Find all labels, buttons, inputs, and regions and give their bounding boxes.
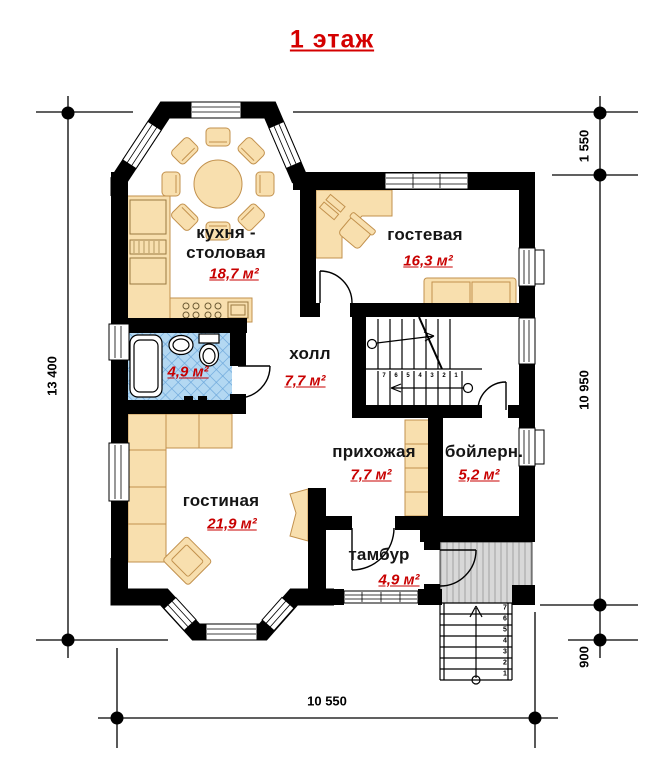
area-label-bathroom: 4,9 м² <box>167 364 208 381</box>
step-number: 4 <box>503 638 507 645</box>
window-guest-top <box>385 173 468 189</box>
window-bay-bottom <box>206 624 257 640</box>
floor-plan-drawing <box>0 0 655 770</box>
room-label-vestibule: тамбур <box>348 545 409 565</box>
step-number: 6 <box>394 373 397 379</box>
step-number: 1 <box>454 373 457 379</box>
area-label-guest: 16,3 м² <box>403 253 452 270</box>
door-guest <box>320 271 352 303</box>
window-bathroom-left <box>109 324 129 360</box>
step-number: 5 <box>406 373 409 379</box>
step-number: 2 <box>503 660 507 667</box>
room-label-boiler: бойлерн. <box>445 442 523 462</box>
armchair-icon <box>163 536 212 585</box>
area-label-vestibule: 4,9 м² <box>378 572 419 589</box>
step-number: 1 <box>503 671 507 678</box>
room-label-living: гостиная <box>183 491 260 511</box>
dimension-right-top: 1 550 <box>577 130 592 163</box>
window-guest-right <box>519 248 544 286</box>
room-label-entrance-hall: прихожая <box>332 442 416 462</box>
interior-stairs-icon <box>366 317 482 405</box>
corner-sofa-icon <box>128 414 232 562</box>
page-title: 1 этаж <box>290 26 374 55</box>
step-number: 2 <box>442 373 445 379</box>
room-label-hall: холл <box>289 344 330 364</box>
dimension-bottom: 10 550 <box>307 694 347 709</box>
entrance-steps-icon <box>440 603 512 684</box>
area-label-boiler: 5,2 м² <box>458 467 499 484</box>
window-bay-top <box>191 102 241 118</box>
window-stair-right <box>519 318 535 364</box>
toilet-icon <box>199 334 219 366</box>
step-number: 3 <box>503 649 507 656</box>
area-label-kitchen: 18,7 м² <box>209 266 258 283</box>
step-number: 3 <box>430 373 433 379</box>
room-label-kitchen-line2: столовая <box>186 243 266 263</box>
wardrobe-icon <box>405 420 429 516</box>
dimension-left: 13 400 <box>45 356 60 396</box>
dimension-right-bottom: 900 <box>577 646 592 668</box>
area-label-hall: 7,7 м² <box>284 373 325 390</box>
step-number: 7 <box>503 605 507 612</box>
bathtub-icon <box>130 335 162 397</box>
door-bathroom <box>238 366 270 398</box>
step-number: 6 <box>503 616 507 623</box>
step-number: 4 <box>418 373 421 379</box>
door-boiler <box>478 382 506 410</box>
window-vestibule-bottom <box>344 591 418 603</box>
area-label-living: 21,9 м² <box>207 516 256 533</box>
window-living-left <box>109 443 129 501</box>
dining-table-icon <box>194 160 242 208</box>
wash-sink-icon <box>169 336 193 355</box>
window-bay-top-left <box>123 121 162 168</box>
step-number: 7 <box>382 373 385 379</box>
dimension-right-middle: 10 950 <box>577 370 592 410</box>
tv-shelf-icon <box>290 489 308 541</box>
area-label-entrance-hall: 7,7 м² <box>350 467 391 484</box>
step-number: 5 <box>503 627 507 634</box>
floor-plan-page: 1 этаж <box>0 0 655 770</box>
room-label-kitchen-line1: кухня - <box>196 223 256 243</box>
window-bay-top-right <box>269 122 301 169</box>
room-label-guest: гостевая <box>387 225 462 245</box>
